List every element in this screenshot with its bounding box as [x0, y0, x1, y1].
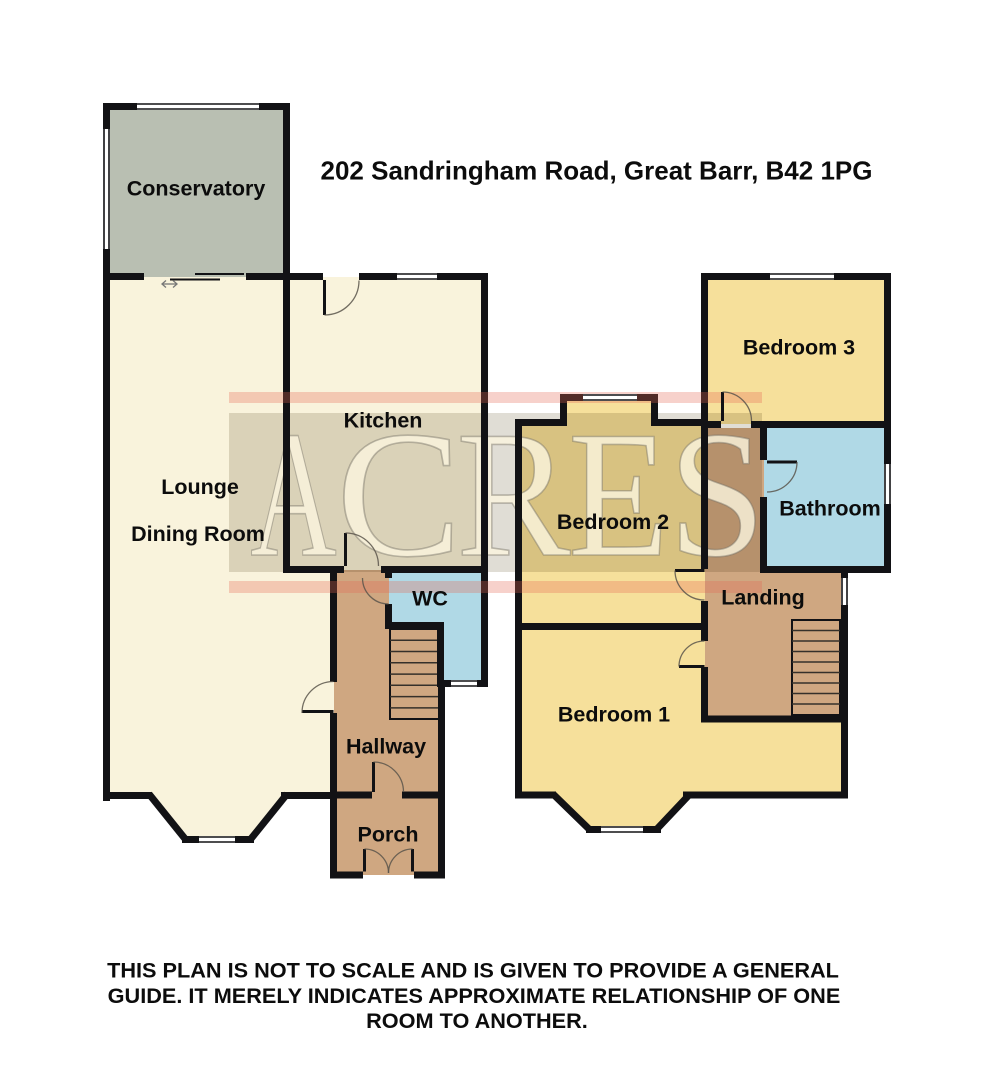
svg-text:WC: WC [412, 587, 448, 611]
svg-text:Dining Room: Dining Room [131, 522, 265, 546]
svg-text:Porch: Porch [358, 823, 419, 847]
svg-text:GUIDE. IT MERELY INDICATES APP: GUIDE. IT MERELY INDICATES APPROXIMATE R… [108, 983, 841, 1008]
svg-text:Bedroom 1: Bedroom 1 [558, 703, 670, 727]
svg-text:Hallway: Hallway [346, 735, 426, 759]
svg-text:Conservatory: Conservatory [127, 177, 266, 201]
svg-text:ROOM TO ANOTHER.: ROOM TO ANOTHER. [366, 1008, 588, 1033]
svg-text:THIS PLAN IS NOT TO SCALE AND: THIS PLAN IS NOT TO SCALE AND IS GIVEN T… [107, 958, 839, 983]
svg-text:Landing: Landing [721, 586, 805, 610]
svg-text:Bathroom: Bathroom [779, 497, 881, 521]
svg-text:Kitchen: Kitchen [344, 409, 423, 433]
svg-text:202 Sandringham Road, Great Ba: 202 Sandringham Road, Great Barr, B42 1P… [321, 156, 873, 186]
svg-text:Lounge: Lounge [161, 475, 239, 499]
svg-text:A: A [250, 394, 336, 595]
svg-text:Bedroom 3: Bedroom 3 [743, 336, 855, 360]
svg-text:Bedroom 2: Bedroom 2 [557, 510, 669, 534]
